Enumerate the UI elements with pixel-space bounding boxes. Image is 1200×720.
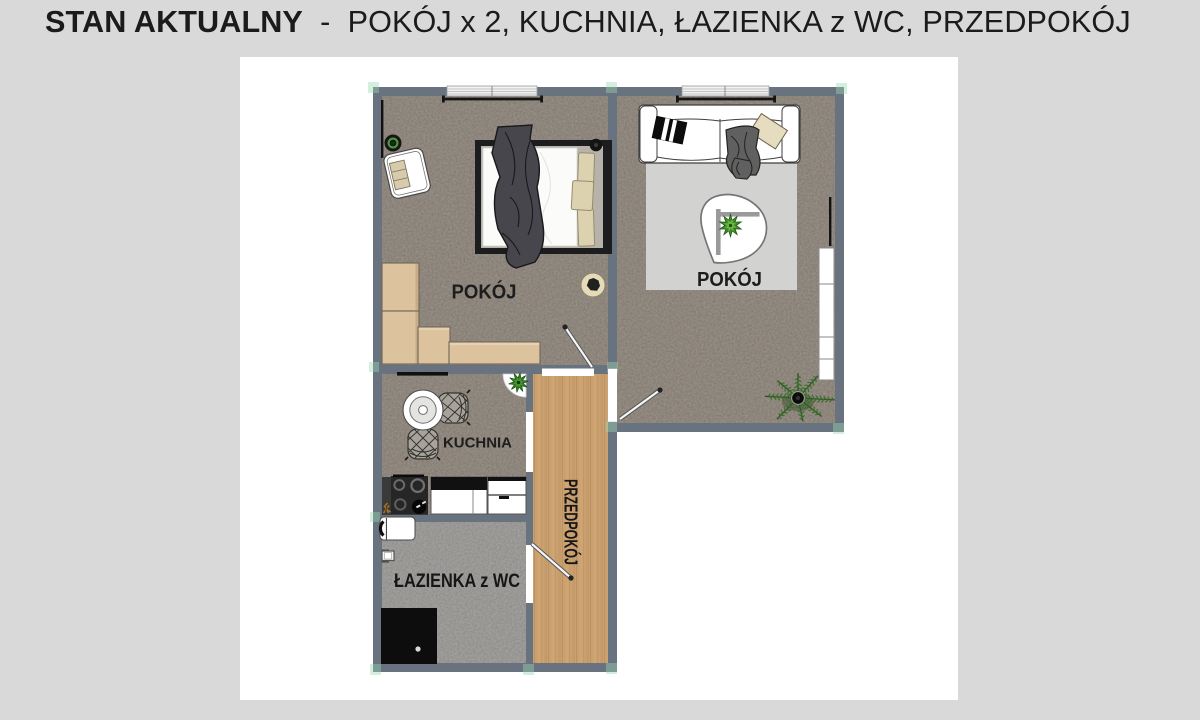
svg-text:PRZEDPOKÓJ: PRZEDPOKÓJ <box>561 479 582 565</box>
svg-text:ŁAZIENKA z WC: ŁAZIENKA z WC <box>394 570 520 592</box>
svg-text:POKÓJ: POKÓJ <box>452 280 517 304</box>
svg-text:KUCHNIA: KUCHNIA <box>443 435 512 452</box>
svg-text:POKÓJ: POKÓJ <box>697 267 762 291</box>
